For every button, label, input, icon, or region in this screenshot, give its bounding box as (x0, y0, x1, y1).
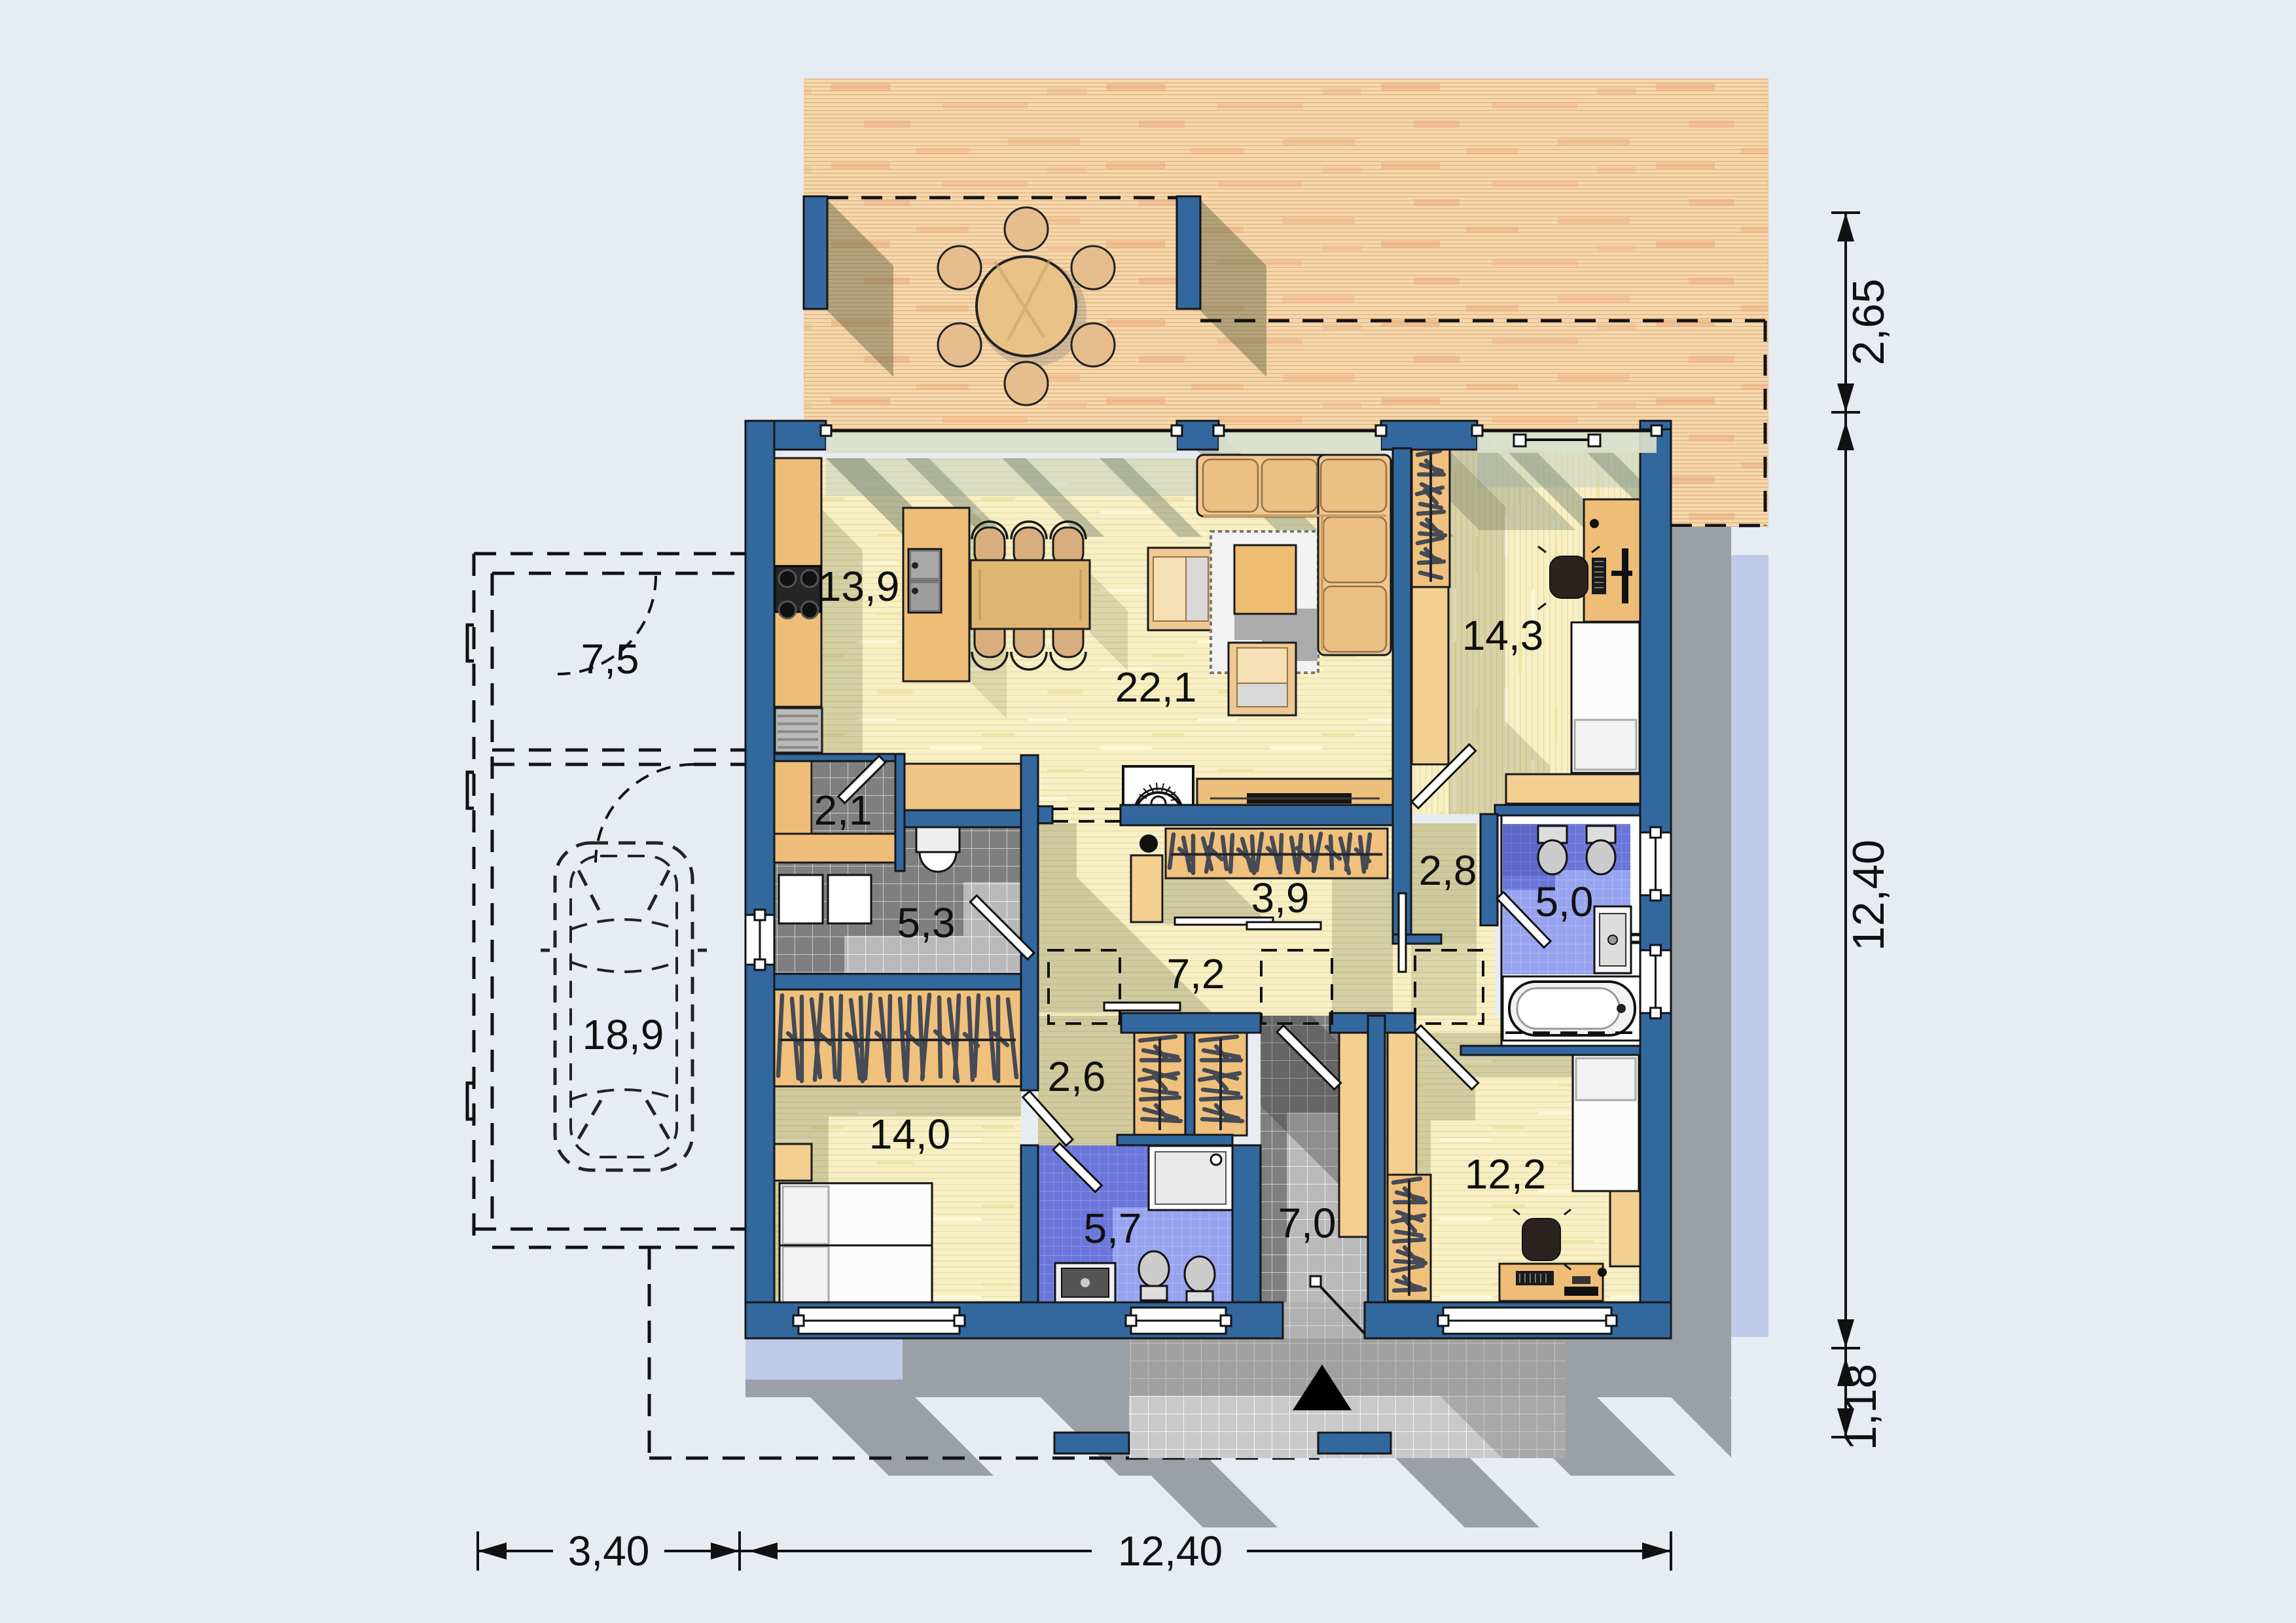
svg-text:5,0: 5,0 (1535, 878, 1594, 925)
svg-text:7,5: 7,5 (581, 635, 639, 683)
svg-text:12,2: 12,2 (1465, 1150, 1547, 1198)
svg-text:14,0: 14,0 (869, 1111, 951, 1158)
svg-text:7,0: 7,0 (1278, 1200, 1336, 1247)
svg-text:22,1: 22,1 (1115, 664, 1197, 711)
svg-text:12,40: 12,40 (1844, 840, 1893, 951)
svg-text:7,2: 7,2 (1167, 950, 1225, 997)
svg-text:1,18: 1,18 (1836, 1364, 1886, 1450)
svg-text:5,7: 5,7 (1084, 1205, 1142, 1252)
svg-text:2,1: 2,1 (814, 787, 872, 834)
svg-text:13,9: 13,9 (818, 563, 900, 610)
svg-text:5,3: 5,3 (897, 899, 956, 946)
svg-text:2,65: 2,65 (1844, 279, 1893, 365)
svg-text:2,6: 2,6 (1048, 1053, 1106, 1100)
svg-text:3,9: 3,9 (1251, 874, 1310, 921)
svg-text:2,8: 2,8 (1419, 847, 1477, 894)
svg-text:14,3: 14,3 (1462, 612, 1544, 659)
svg-text:3,40: 3,40 (568, 1527, 650, 1575)
svg-text:18,9: 18,9 (583, 1011, 664, 1058)
svg-text:12,40: 12,40 (1118, 1527, 1223, 1575)
